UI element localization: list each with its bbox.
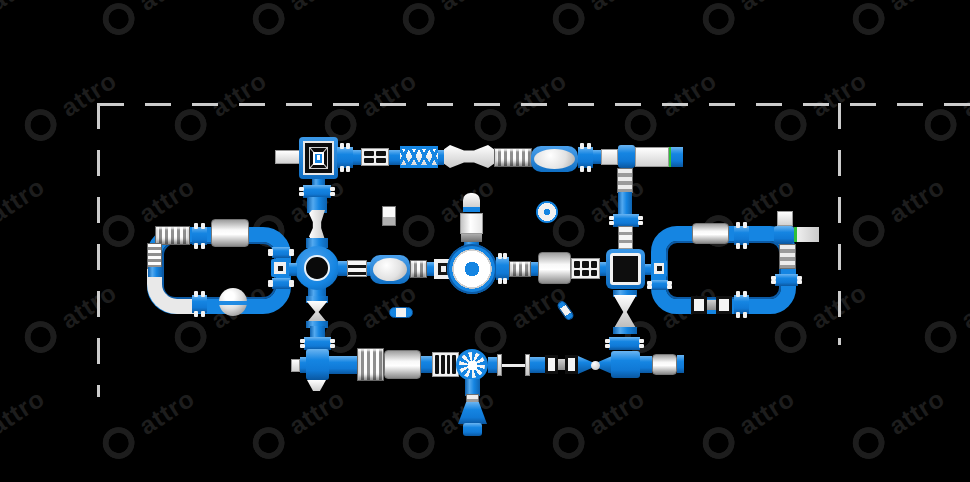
climb-wedge bbox=[617, 168, 633, 193]
slide-step bbox=[466, 394, 479, 403]
entry-pad bbox=[777, 211, 793, 226]
junction-right-loop bbox=[774, 226, 794, 244]
pipe bbox=[353, 150, 361, 165]
exit-pad bbox=[463, 423, 482, 436]
connector bbox=[192, 295, 207, 313]
park-modules bbox=[0, 0, 970, 482]
pipe bbox=[640, 356, 652, 373]
connector bbox=[734, 295, 749, 314]
pipe bbox=[329, 356, 357, 374]
pipe bbox=[593, 150, 601, 164]
connector bbox=[192, 227, 207, 245]
connector bbox=[651, 280, 668, 290]
blob-pad bbox=[531, 146, 578, 172]
x-truss-bridge bbox=[400, 146, 438, 168]
wave-beam bbox=[444, 145, 494, 168]
roller bbox=[692, 223, 729, 244]
hand-paddles bbox=[691, 296, 732, 314]
cargo-net-3x2 bbox=[571, 258, 600, 279]
connector bbox=[272, 278, 290, 289]
pipe bbox=[421, 356, 432, 373]
water-wheel bbox=[456, 349, 488, 381]
float-log bbox=[389, 307, 413, 318]
mini-junction bbox=[271, 259, 289, 277]
exit-slide-right bbox=[794, 227, 819, 242]
pipe bbox=[531, 262, 538, 276]
ladder-4 bbox=[432, 352, 459, 377]
round-spinner-platform bbox=[447, 244, 497, 294]
roller-stripes bbox=[494, 148, 532, 167]
twist-bridge bbox=[613, 290, 637, 334]
pinch-connector bbox=[578, 356, 612, 374]
exit-slide-left bbox=[275, 150, 302, 164]
aqua-park-layout-diagram: attroattroattroattroattroattroattroattro… bbox=[0, 0, 970, 482]
twist-mini bbox=[306, 296, 328, 328]
cross-junction bbox=[306, 349, 329, 380]
entry-steps-side bbox=[147, 243, 162, 269]
ring-junction bbox=[295, 246, 339, 290]
pipe bbox=[671, 147, 683, 167]
connector bbox=[578, 147, 593, 168]
pipe bbox=[338, 261, 347, 276]
float-log bbox=[556, 299, 575, 321]
float-donut bbox=[536, 201, 558, 223]
climb-wedge bbox=[779, 244, 796, 269]
connector bbox=[337, 147, 353, 168]
runway-platform bbox=[635, 147, 669, 167]
junction-top-right bbox=[618, 145, 635, 168]
climb-tower-platform bbox=[299, 137, 338, 179]
wide-roller bbox=[357, 348, 384, 381]
slide-tip bbox=[307, 380, 326, 391]
mini-junction bbox=[651, 260, 667, 277]
pipe bbox=[530, 357, 545, 373]
blob-pad-2 bbox=[370, 255, 410, 284]
pipe bbox=[148, 267, 162, 277]
connector bbox=[734, 226, 749, 245]
pipe bbox=[488, 357, 497, 373]
float-cube bbox=[382, 206, 396, 226]
pipe bbox=[389, 150, 400, 165]
connector bbox=[496, 257, 509, 280]
roller-left bbox=[211, 219, 249, 247]
balance-ball bbox=[219, 288, 247, 316]
pipe bbox=[427, 262, 434, 276]
connector bbox=[609, 337, 640, 350]
long-roller bbox=[384, 350, 421, 379]
connector bbox=[272, 247, 290, 258]
hand-paddles bbox=[545, 355, 578, 374]
t-junction-bottom bbox=[611, 351, 640, 378]
balance-roller bbox=[538, 252, 571, 284]
ladder-2x2 bbox=[361, 148, 389, 166]
pipe bbox=[438, 150, 444, 165]
balance-beam bbox=[309, 210, 325, 240]
ladder-3 bbox=[410, 260, 427, 278]
end-cap bbox=[291, 359, 300, 372]
slide-wedge bbox=[601, 149, 618, 165]
exit-flare bbox=[458, 402, 487, 424]
connector bbox=[775, 274, 798, 286]
monkey-bar bbox=[497, 354, 530, 376]
square-platform bbox=[606, 249, 645, 289]
pipe bbox=[289, 263, 297, 276]
pipe bbox=[618, 192, 632, 215]
roller-small bbox=[509, 261, 531, 277]
end-roller bbox=[652, 354, 677, 375]
pipe bbox=[677, 355, 684, 373]
double-rail bbox=[347, 260, 367, 277]
